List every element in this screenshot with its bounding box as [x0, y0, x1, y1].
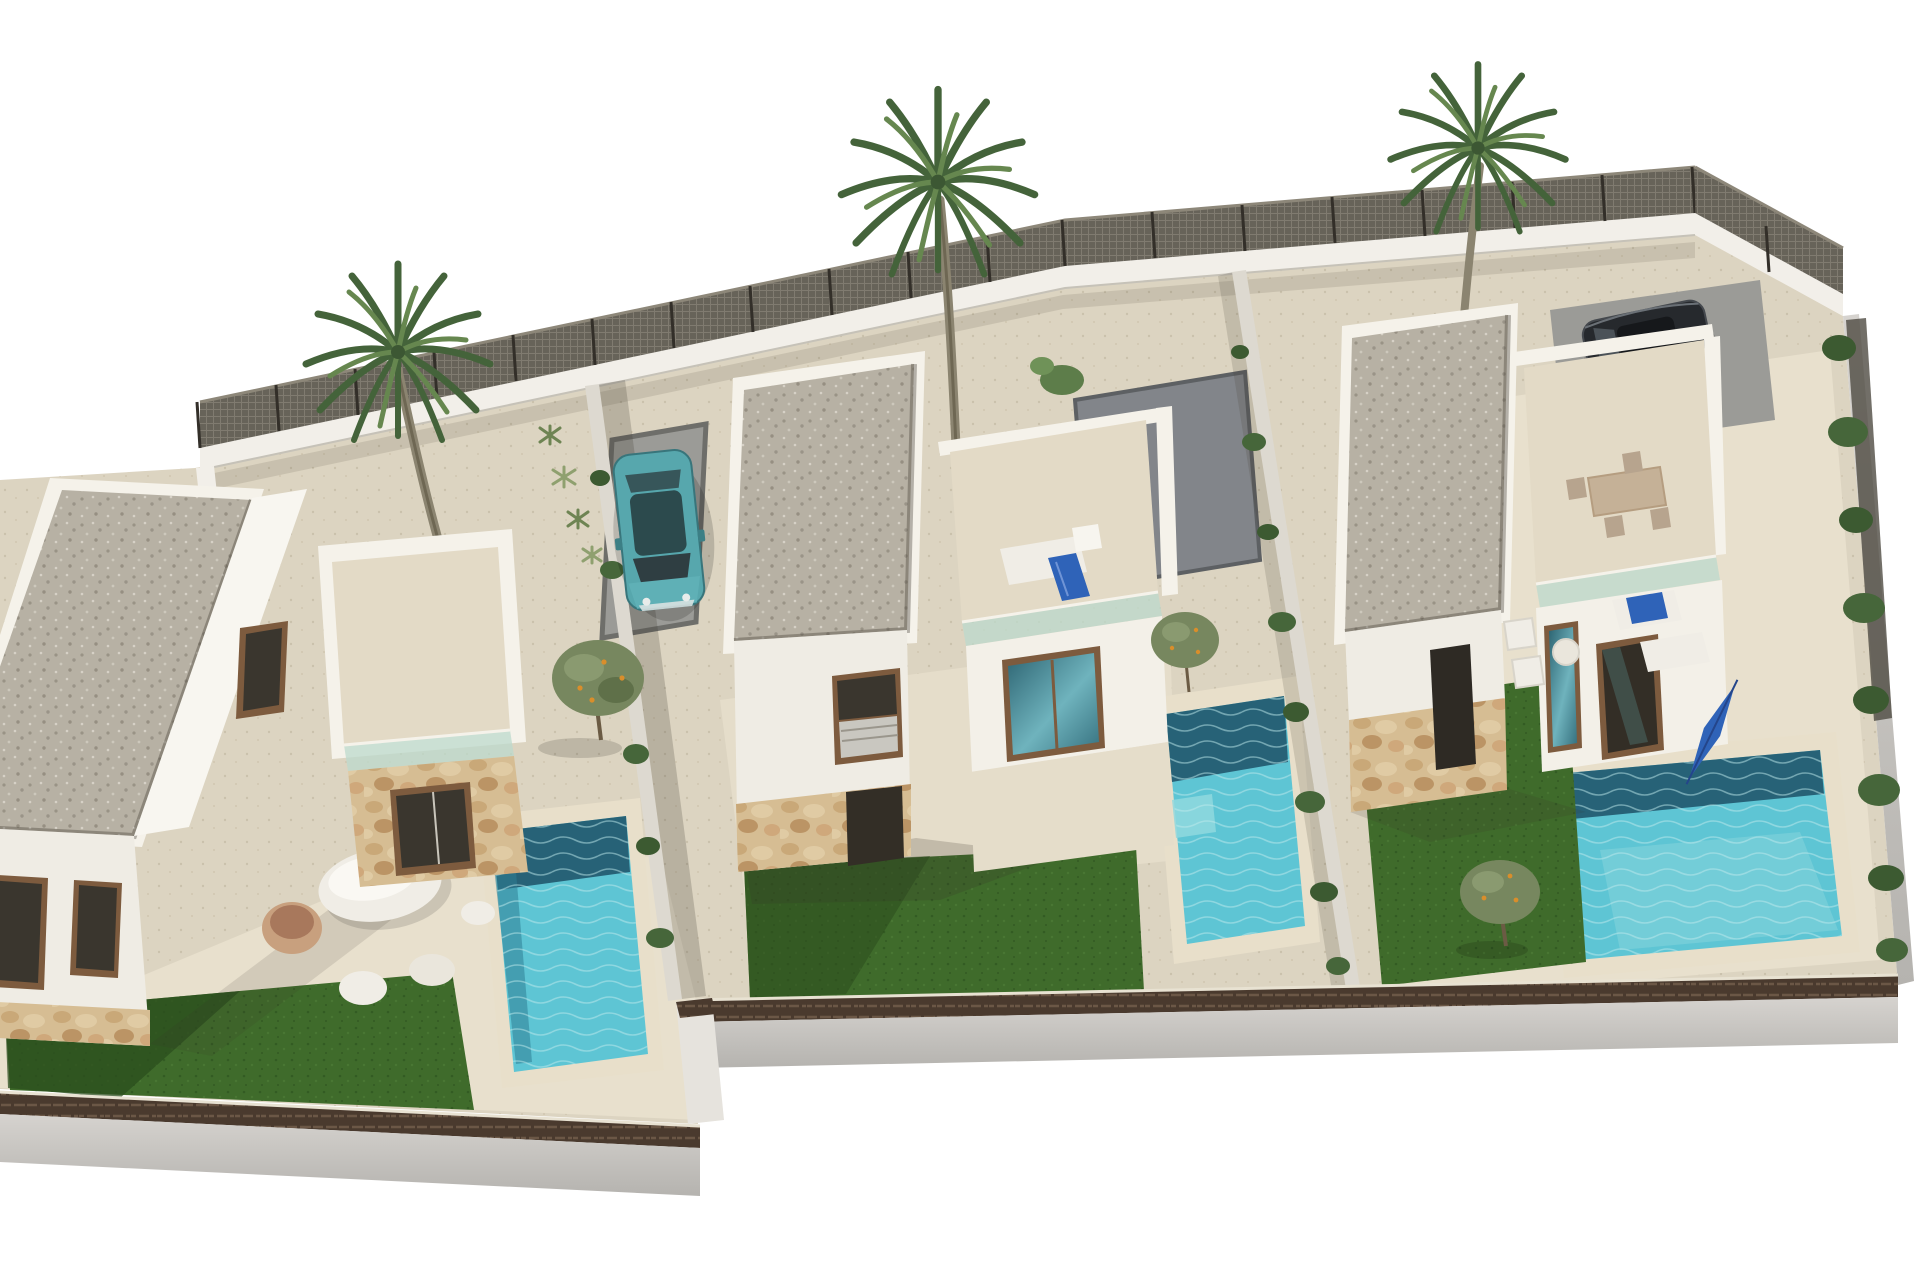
right-pool — [1540, 732, 1860, 978]
roof-terrace-floor — [950, 420, 1158, 622]
armchair — [1504, 618, 1536, 650]
tall-block-gravel-roof — [1345, 315, 1508, 632]
roof-terrace-floor — [332, 547, 510, 745]
side-table — [1553, 639, 1579, 665]
chair — [1604, 515, 1625, 538]
palmetto-shrub-small — [1030, 357, 1054, 375]
villa-development-render — [0, 0, 1920, 1280]
roof-terrace-floor — [1524, 340, 1716, 584]
chair — [1566, 477, 1587, 500]
chair — [1650, 507, 1671, 530]
tall-block-gravel-roof — [734, 364, 914, 641]
stone-door — [846, 786, 904, 866]
chair — [1622, 451, 1643, 474]
armchair — [1512, 656, 1544, 688]
car-roof — [629, 489, 687, 556]
render-canvas — [0, 0, 1920, 1280]
entrance-door — [1430, 644, 1476, 770]
